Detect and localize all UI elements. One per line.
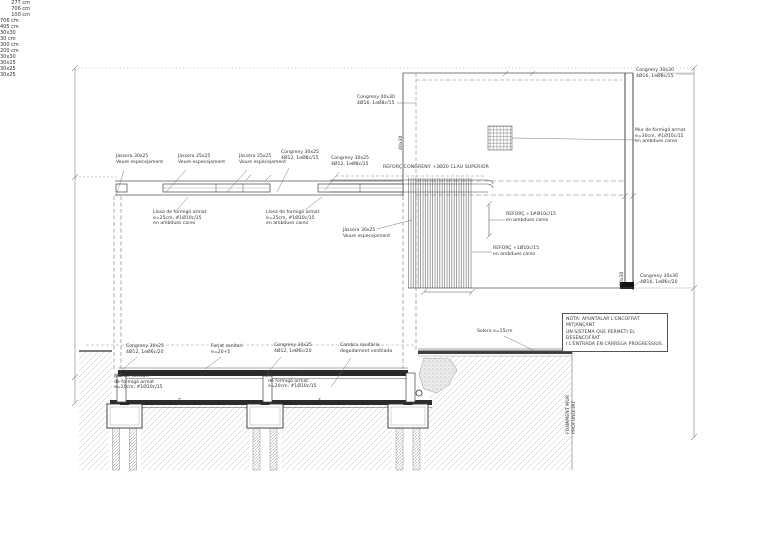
label-cambra: Cambra sanitària degudament ventilada — [340, 343, 392, 354]
dim-30x30-vertical: 30x30 — [620, 272, 626, 286]
label-congreny-2: Congreny 30x25 4Ø12, 1eØ8c/15 — [331, 156, 369, 167]
label-jassera-1: Jàssera 30x25 Veure especejament — [116, 154, 163, 165]
label-forjat: Forjat sanitari e=20+5 — [211, 344, 243, 355]
note-box: NOTA: APUNTALAR L'ENCOFRAT MITJANÇANT UN… — [562, 313, 668, 352]
label-jassera-2: Jàssera 25x25 Veure especejament — [178, 154, 225, 165]
label-congreny-30x30-bottom: Congreny 30x30 4Ø16, 1eØ6c/20 — [640, 274, 678, 285]
dimension-lines — [72, 65, 697, 440]
label-congreny-1: Congreny 30x25 4Ø12, 1eØ8c/15 — [281, 150, 319, 161]
solera-band — [418, 349, 572, 356]
label-congreny-b2: Congreny 30x25 4Ø12, 1eØ6c/20 — [274, 343, 312, 354]
label-reforc-1: REFORÇ +1#Ø10c/15 en ambdues cares — [506, 212, 556, 223]
label-llosa-1: Llosa de formigó armat e=25cm, #1Ø10c/15… — [153, 210, 206, 227]
earth-hatch — [79, 349, 572, 470]
drawing-linework — [0, 0, 768, 539]
label-mur-sanitari-2: Mur de sanitari de formigó armat e=20cm,… — [268, 373, 317, 390]
label-mur-formigo: Mur de formigó armat e=30cm, #1Ø10c/15 e… — [635, 128, 685, 145]
label-llosa-2: Llosa de formigó armat e=25cm, #1Ø10c/15… — [266, 210, 319, 227]
label-mur-sanitari-1: Mur de sanitari de formigó armat e=20cm,… — [114, 374, 163, 391]
label-reforc-2: REFORÇ +1Ø10c/15 en ambdues cares — [493, 246, 539, 257]
label-reforc-congreny: REFORÇ CONGRENY +3Ø20 CLAU SUPERIOR — [383, 165, 489, 171]
label-congreny-b1: Congreny 30x25 4Ø12, 1eØ6c/20 — [126, 344, 164, 355]
label-t-right: T — [318, 399, 321, 405]
dim-40x30-vertical: 40x30 — [399, 136, 405, 150]
label-solera: Solera e=15cm — [477, 329, 513, 335]
label-jassera-4: Jàssera 30x25 Veure especejament — [343, 228, 390, 239]
label-fonament-mur: FONAMENT MUR PROFUNDITAT — [566, 395, 577, 434]
label-congreny-30x30-top: Congreny 30x30 4Ø16, 1eØ8c/15 — [636, 68, 674, 79]
label-jassera-3: Jàssera 25x25 Veure especejament — [239, 154, 286, 165]
label-congreny-40x30: Congreny 40x30 4Ø16, 1eØ8c/15 — [357, 95, 395, 106]
label-t-left: T — [178, 399, 181, 405]
section-drawing: 277 cm 706 cm 100 cm 706 cm 405 cm 30x30… — [0, 0, 768, 539]
